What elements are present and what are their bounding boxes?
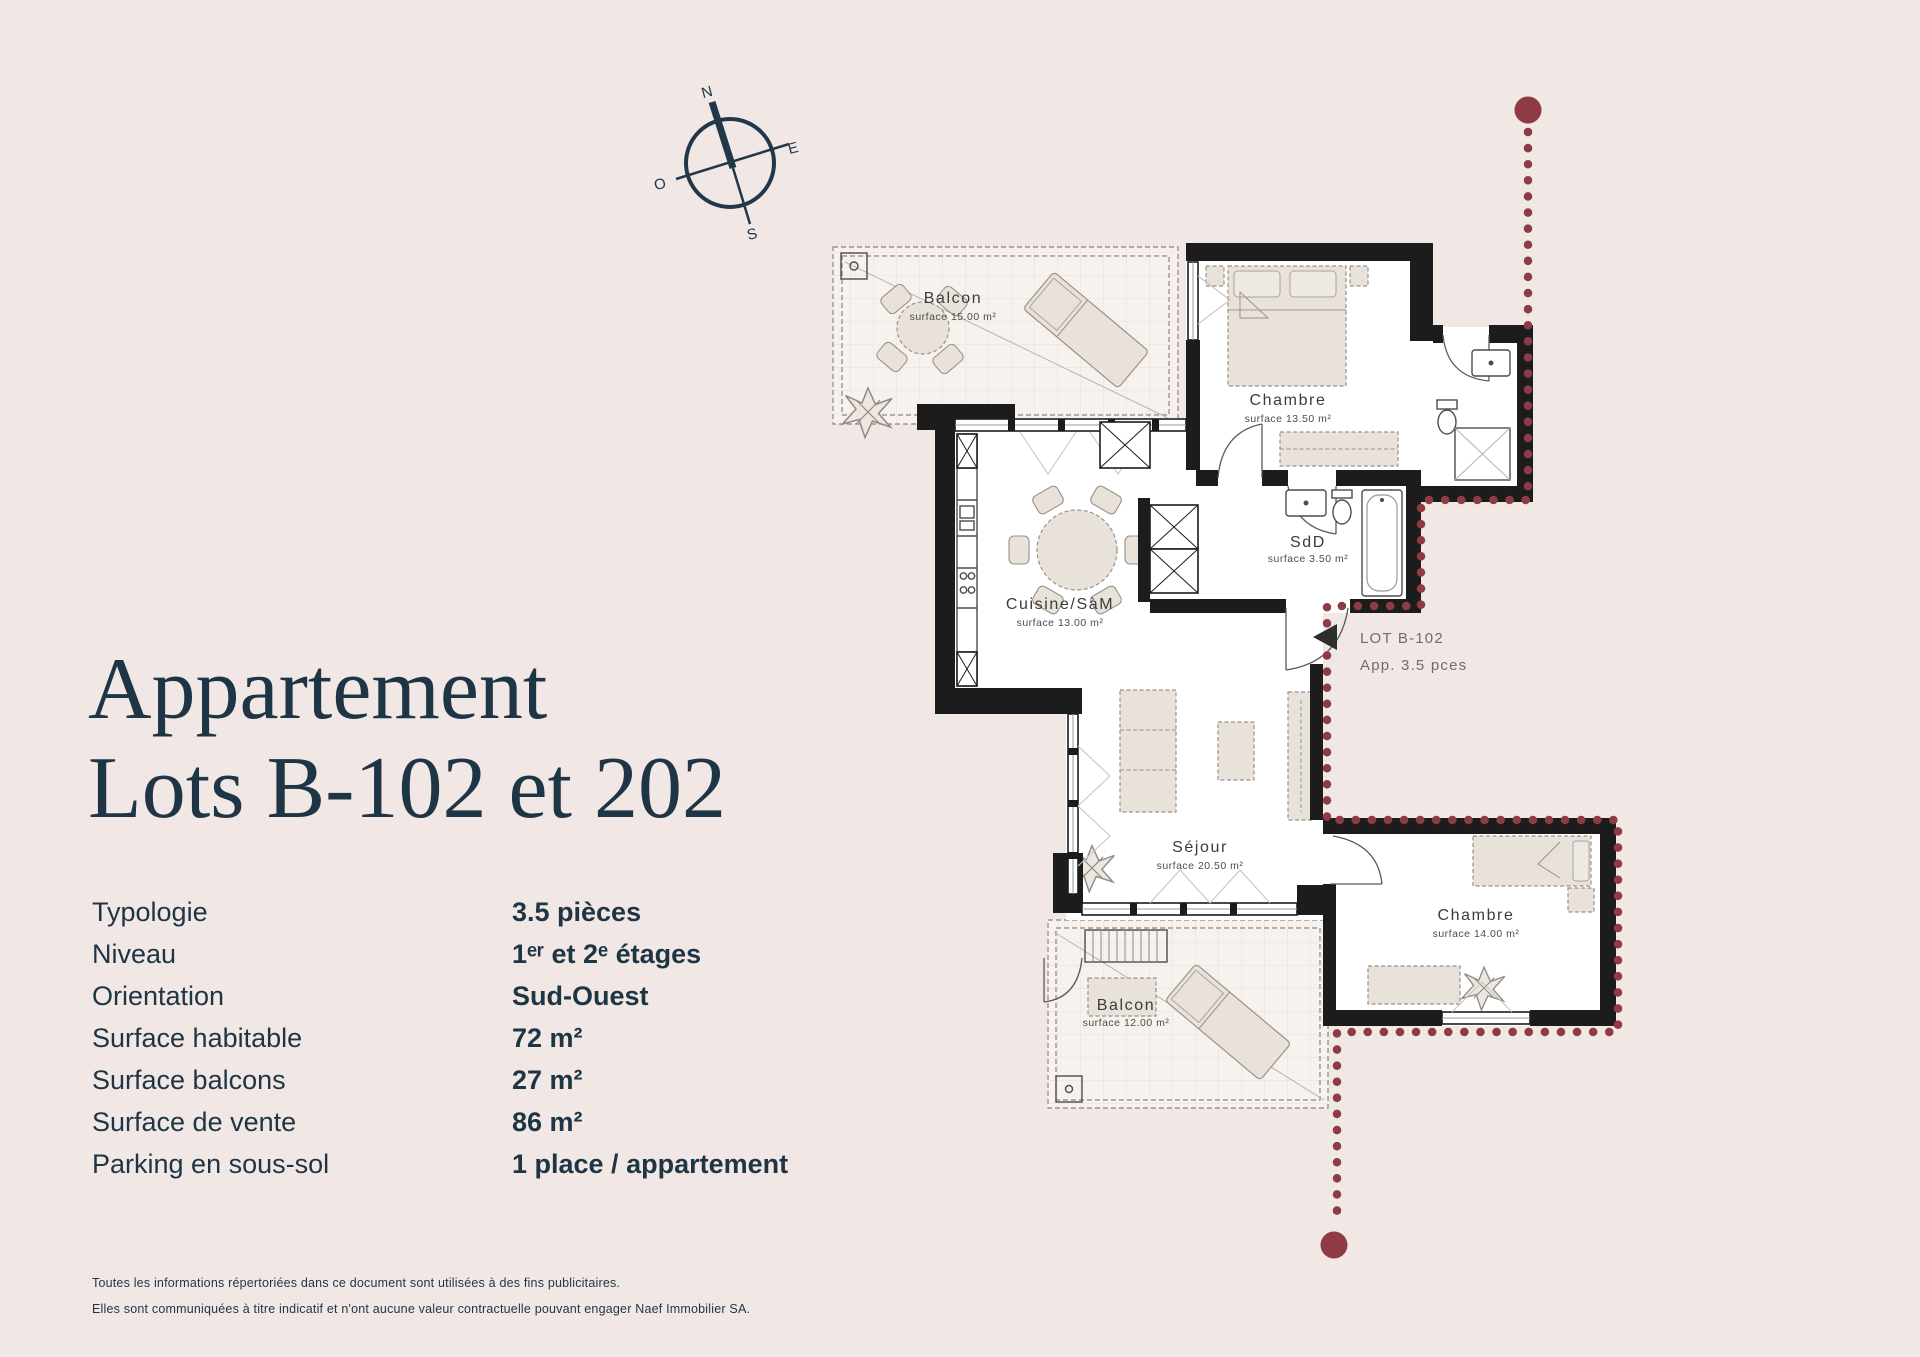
bathtub-icon (1362, 490, 1402, 596)
floor-plan: Balcon surface 15.00 m² Chambre surface … (0, 0, 1920, 1357)
room-surface-chambre-bottom: surface 14.00 m² (1433, 928, 1520, 940)
nightstand-icon (1206, 266, 1224, 286)
room-surface-sejour: surface 20.50 m² (1157, 860, 1244, 872)
room-surface-cuisine: surface 13.00 m² (1017, 617, 1104, 629)
boundary-endpoint-bottom (1321, 1232, 1348, 1259)
boundary-endpoint-top (1515, 97, 1542, 124)
closet-icon (1150, 549, 1198, 593)
wardrobe-icon (1280, 432, 1398, 466)
toilet-icon (1332, 490, 1352, 524)
nightstand-icon (1568, 888, 1594, 912)
closet-icon (1150, 505, 1198, 549)
washbasin-icon (1472, 350, 1510, 376)
room-label-balcon-bottom: Balcon (1097, 997, 1156, 1014)
compass-north: N (700, 83, 715, 102)
room-label-balcon-top: Balcon (924, 290, 983, 307)
washbasin-icon (1286, 490, 1326, 516)
room-surface-sdd: surface 3.50 m² (1268, 553, 1348, 565)
room-label-chambre-bottom: Chambre (1437, 907, 1514, 924)
desk-icon (1368, 966, 1460, 1004)
lot-number: LOT B-102 (1360, 630, 1444, 647)
shower-icon (1455, 428, 1510, 480)
coffee-table-icon (1218, 722, 1254, 780)
room-surface-balcon-top: surface 15.00 m² (910, 311, 997, 323)
compass-icon: N E S O (652, 83, 800, 244)
compass-south: S (745, 225, 759, 244)
balcony-bottom (1048, 920, 1328, 1108)
compass-west: O (652, 175, 668, 194)
sofa-icon (1120, 690, 1176, 812)
room-label-sdd: SdD (1290, 534, 1326, 551)
toilet-icon (1437, 400, 1457, 434)
bed-icon (1473, 836, 1591, 886)
lot-tag: LOT B-102 App. 3.5 pces (1313, 624, 1467, 674)
room-surface-balcon-bottom: surface 12.00 m² (1083, 1017, 1170, 1029)
bed-icon (1228, 266, 1346, 386)
compass-east: E (786, 139, 800, 158)
shaft-icon (1100, 422, 1150, 468)
room-label-chambre-top: Chambre (1249, 392, 1326, 409)
round-table-icon (897, 302, 949, 354)
room-surface-chambre-top: surface 13.50 m² (1245, 413, 1332, 425)
lot-type: App. 3.5 pces (1360, 657, 1467, 674)
nightstand-icon (1350, 266, 1368, 286)
room-label-cuisine: Cuisine/SàM (1006, 596, 1114, 613)
room-label-sejour: Séjour (1172, 839, 1228, 856)
